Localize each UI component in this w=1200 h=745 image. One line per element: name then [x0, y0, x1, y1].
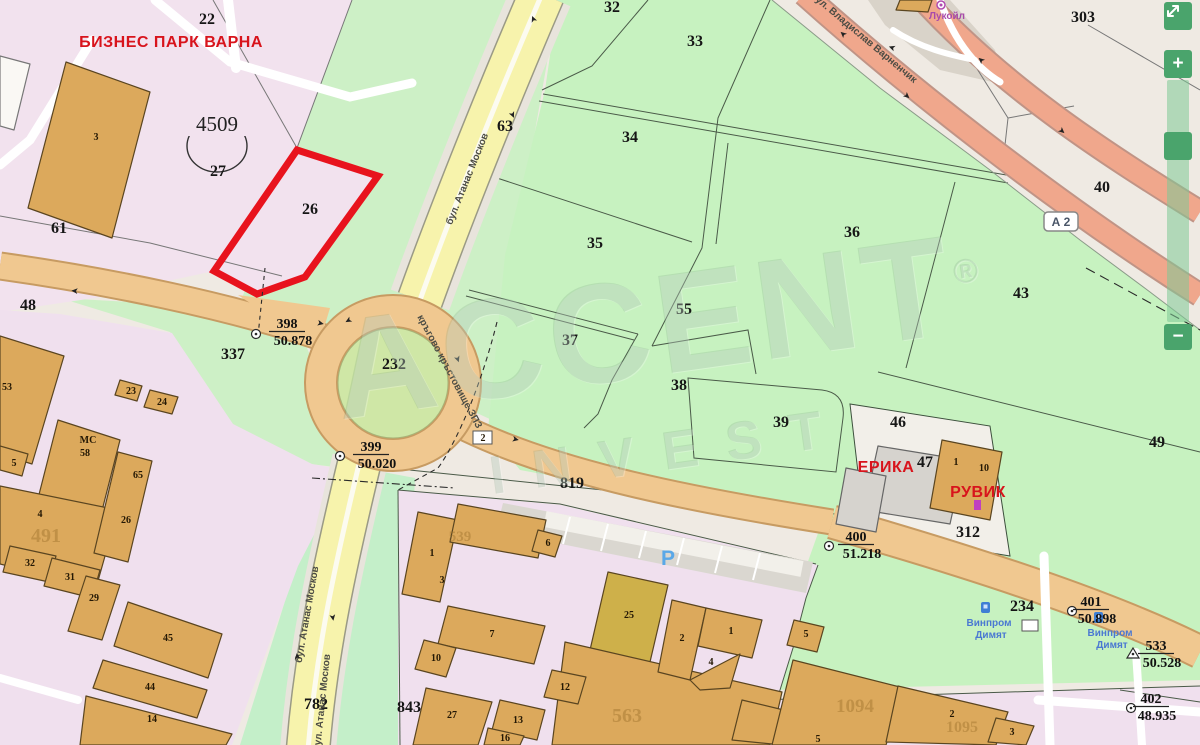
building-label-31: 31	[65, 572, 75, 583]
building-label-5: 5	[816, 734, 821, 745]
region-label-337: 337	[221, 346, 245, 363]
region-label-32: 32	[604, 0, 620, 16]
benchmark-number-400: 400	[846, 530, 867, 545]
building-label-1: 1	[430, 548, 435, 559]
parking-icon: P	[661, 547, 675, 570]
building-label-10: 10	[431, 653, 441, 664]
building-label-13: 13	[513, 715, 523, 726]
region-label-33: 33	[687, 33, 703, 50]
fullscreen-icon	[1164, 2, 1182, 20]
region-label-312: 312	[956, 524, 980, 541]
building-label-3: 3	[94, 132, 99, 143]
building-label-1: 1	[954, 457, 959, 468]
building-label-4: 4	[709, 657, 714, 668]
poi-label-Винпром: Винпром	[1088, 628, 1133, 639]
road-box-label-2: 2	[481, 433, 486, 444]
region-label-232: 232	[382, 356, 406, 373]
building-label-58: 58	[80, 448, 90, 459]
building-label-МС: МС	[80, 435, 97, 446]
benchmark-dot-400	[828, 545, 831, 548]
region-label-38: 38	[671, 377, 687, 394]
building-label-4: 4	[38, 509, 43, 520]
building-label-2: 2	[680, 633, 685, 644]
benchmark-number-533: 533	[1146, 639, 1167, 654]
building-label-23: 23	[126, 386, 136, 397]
region-label-843: 843	[397, 699, 421, 716]
building-label-5: 5	[804, 629, 809, 640]
building-label-14: 14	[147, 714, 157, 725]
region-label-49: 49	[1149, 434, 1165, 451]
faded-label-1095: 1095	[946, 719, 978, 736]
building-label-7: 7	[490, 629, 495, 640]
benchmark-elevation-402: 48.935	[1138, 709, 1177, 724]
benchmark-elevation-533: 50.528	[1143, 656, 1182, 671]
building-label-29: 29	[89, 593, 99, 604]
region-label-47: 47	[917, 454, 933, 471]
building-label-5: 5	[12, 458, 17, 469]
region-label-35: 35	[587, 235, 603, 252]
region-label-55: 55	[676, 301, 692, 318]
region-label-39: 39	[773, 414, 789, 431]
region-label-36: 36	[844, 224, 860, 241]
benchmark-number-401: 401	[1081, 595, 1102, 610]
zoom-slider-track[interactable]	[1167, 80, 1189, 322]
faded-label-1094: 1094	[836, 696, 875, 717]
road-badge-label: А 2	[1052, 215, 1071, 229]
benchmark-elevation-400: 51.218	[843, 547, 882, 562]
district-number: 4509	[196, 112, 238, 136]
region-label-46: 46	[890, 414, 906, 431]
building-label-45: 45	[163, 633, 173, 644]
building-label-26: 26	[121, 515, 131, 526]
fullscreen-button[interactable]	[1164, 2, 1192, 30]
building-label-3: 3	[1010, 727, 1015, 738]
building-label-12: 12	[560, 682, 570, 693]
building-label-53: 53	[2, 382, 12, 393]
benchmark-elevation-398: 50.878	[274, 334, 313, 349]
benchmark-dot-398	[255, 333, 258, 336]
poi-label-Димят: Димят	[975, 630, 1007, 641]
red-poi-label-БИЗНЕС ПАРК ВАРНА: БИЗНЕС ПАРК ВАРНА	[79, 34, 263, 51]
benchmark-dot-401	[1071, 610, 1074, 613]
red-poi-label-ЕРИКА: ЕРИКА	[858, 459, 915, 476]
benchmark-number-399: 399	[361, 440, 382, 455]
traffic-arrow-icon: ➤	[70, 286, 79, 297]
benchmark-elevation-399: 50.020	[358, 457, 397, 472]
building-label-10: 10	[979, 463, 989, 474]
faded-label-491: 491	[31, 525, 61, 547]
region-label-37: 37	[562, 332, 578, 349]
fuel-station-icon	[937, 1, 945, 9]
zoom-slider-handle[interactable]	[1164, 132, 1192, 160]
region-label-819: 819	[560, 475, 584, 492]
region-label-61: 61	[51, 220, 67, 237]
region-label-63: 63	[497, 118, 513, 135]
region-label-27: 27	[210, 163, 226, 180]
map-canvas[interactable]: 2227266148337232633233343536373839404346…	[0, 0, 1200, 745]
benchmark-dot-399	[339, 455, 342, 458]
region-label-303: 303	[1071, 9, 1095, 26]
zoom-out-button[interactable]: −	[1164, 324, 1192, 350]
building-label-27: 27	[447, 710, 457, 721]
building-label-24: 24	[157, 397, 167, 408]
region-label-40: 40	[1094, 179, 1110, 196]
benchmark-dot-402	[1130, 707, 1133, 710]
region-label-34: 34	[622, 129, 638, 146]
building-label-6: 6	[546, 538, 551, 549]
map-viewer: 2227266148337232633233343536373839404346…	[0, 0, 1200, 745]
faded-label-539: 539	[449, 529, 472, 545]
benchmark-dot-533	[1132, 653, 1135, 656]
poi-label-Лукойл: Лукойл	[929, 11, 965, 22]
region-label-22: 22	[199, 11, 215, 28]
region-label-43: 43	[1013, 285, 1029, 302]
building-label-32: 32	[25, 558, 35, 569]
building-label-25: 25	[624, 610, 634, 621]
faded-label-563: 563	[612, 705, 642, 727]
poi-label-Винпром: Винпром	[967, 618, 1012, 629]
red-poi-label-РУВИК: РУВИК	[950, 484, 1006, 501]
benchmark-number-402: 402	[1141, 692, 1162, 707]
building-label-3: 3	[440, 575, 445, 586]
building-label-44: 44	[145, 682, 155, 693]
building-label-65: 65	[133, 470, 143, 481]
benchmark-number-398: 398	[277, 317, 298, 332]
bus-stop-icon	[981, 602, 990, 613]
poi-label-Димят: Димят	[1096, 640, 1128, 651]
zoom-in-button[interactable]: +	[1164, 50, 1192, 78]
region-label-234: 234	[1010, 598, 1034, 615]
benchmark-elevation-401: 50.898	[1078, 612, 1117, 627]
building-label-1: 1	[729, 626, 734, 637]
region-label-48: 48	[20, 297, 36, 314]
building-label-16: 16	[500, 733, 510, 744]
region-label-26: 26	[302, 201, 318, 218]
